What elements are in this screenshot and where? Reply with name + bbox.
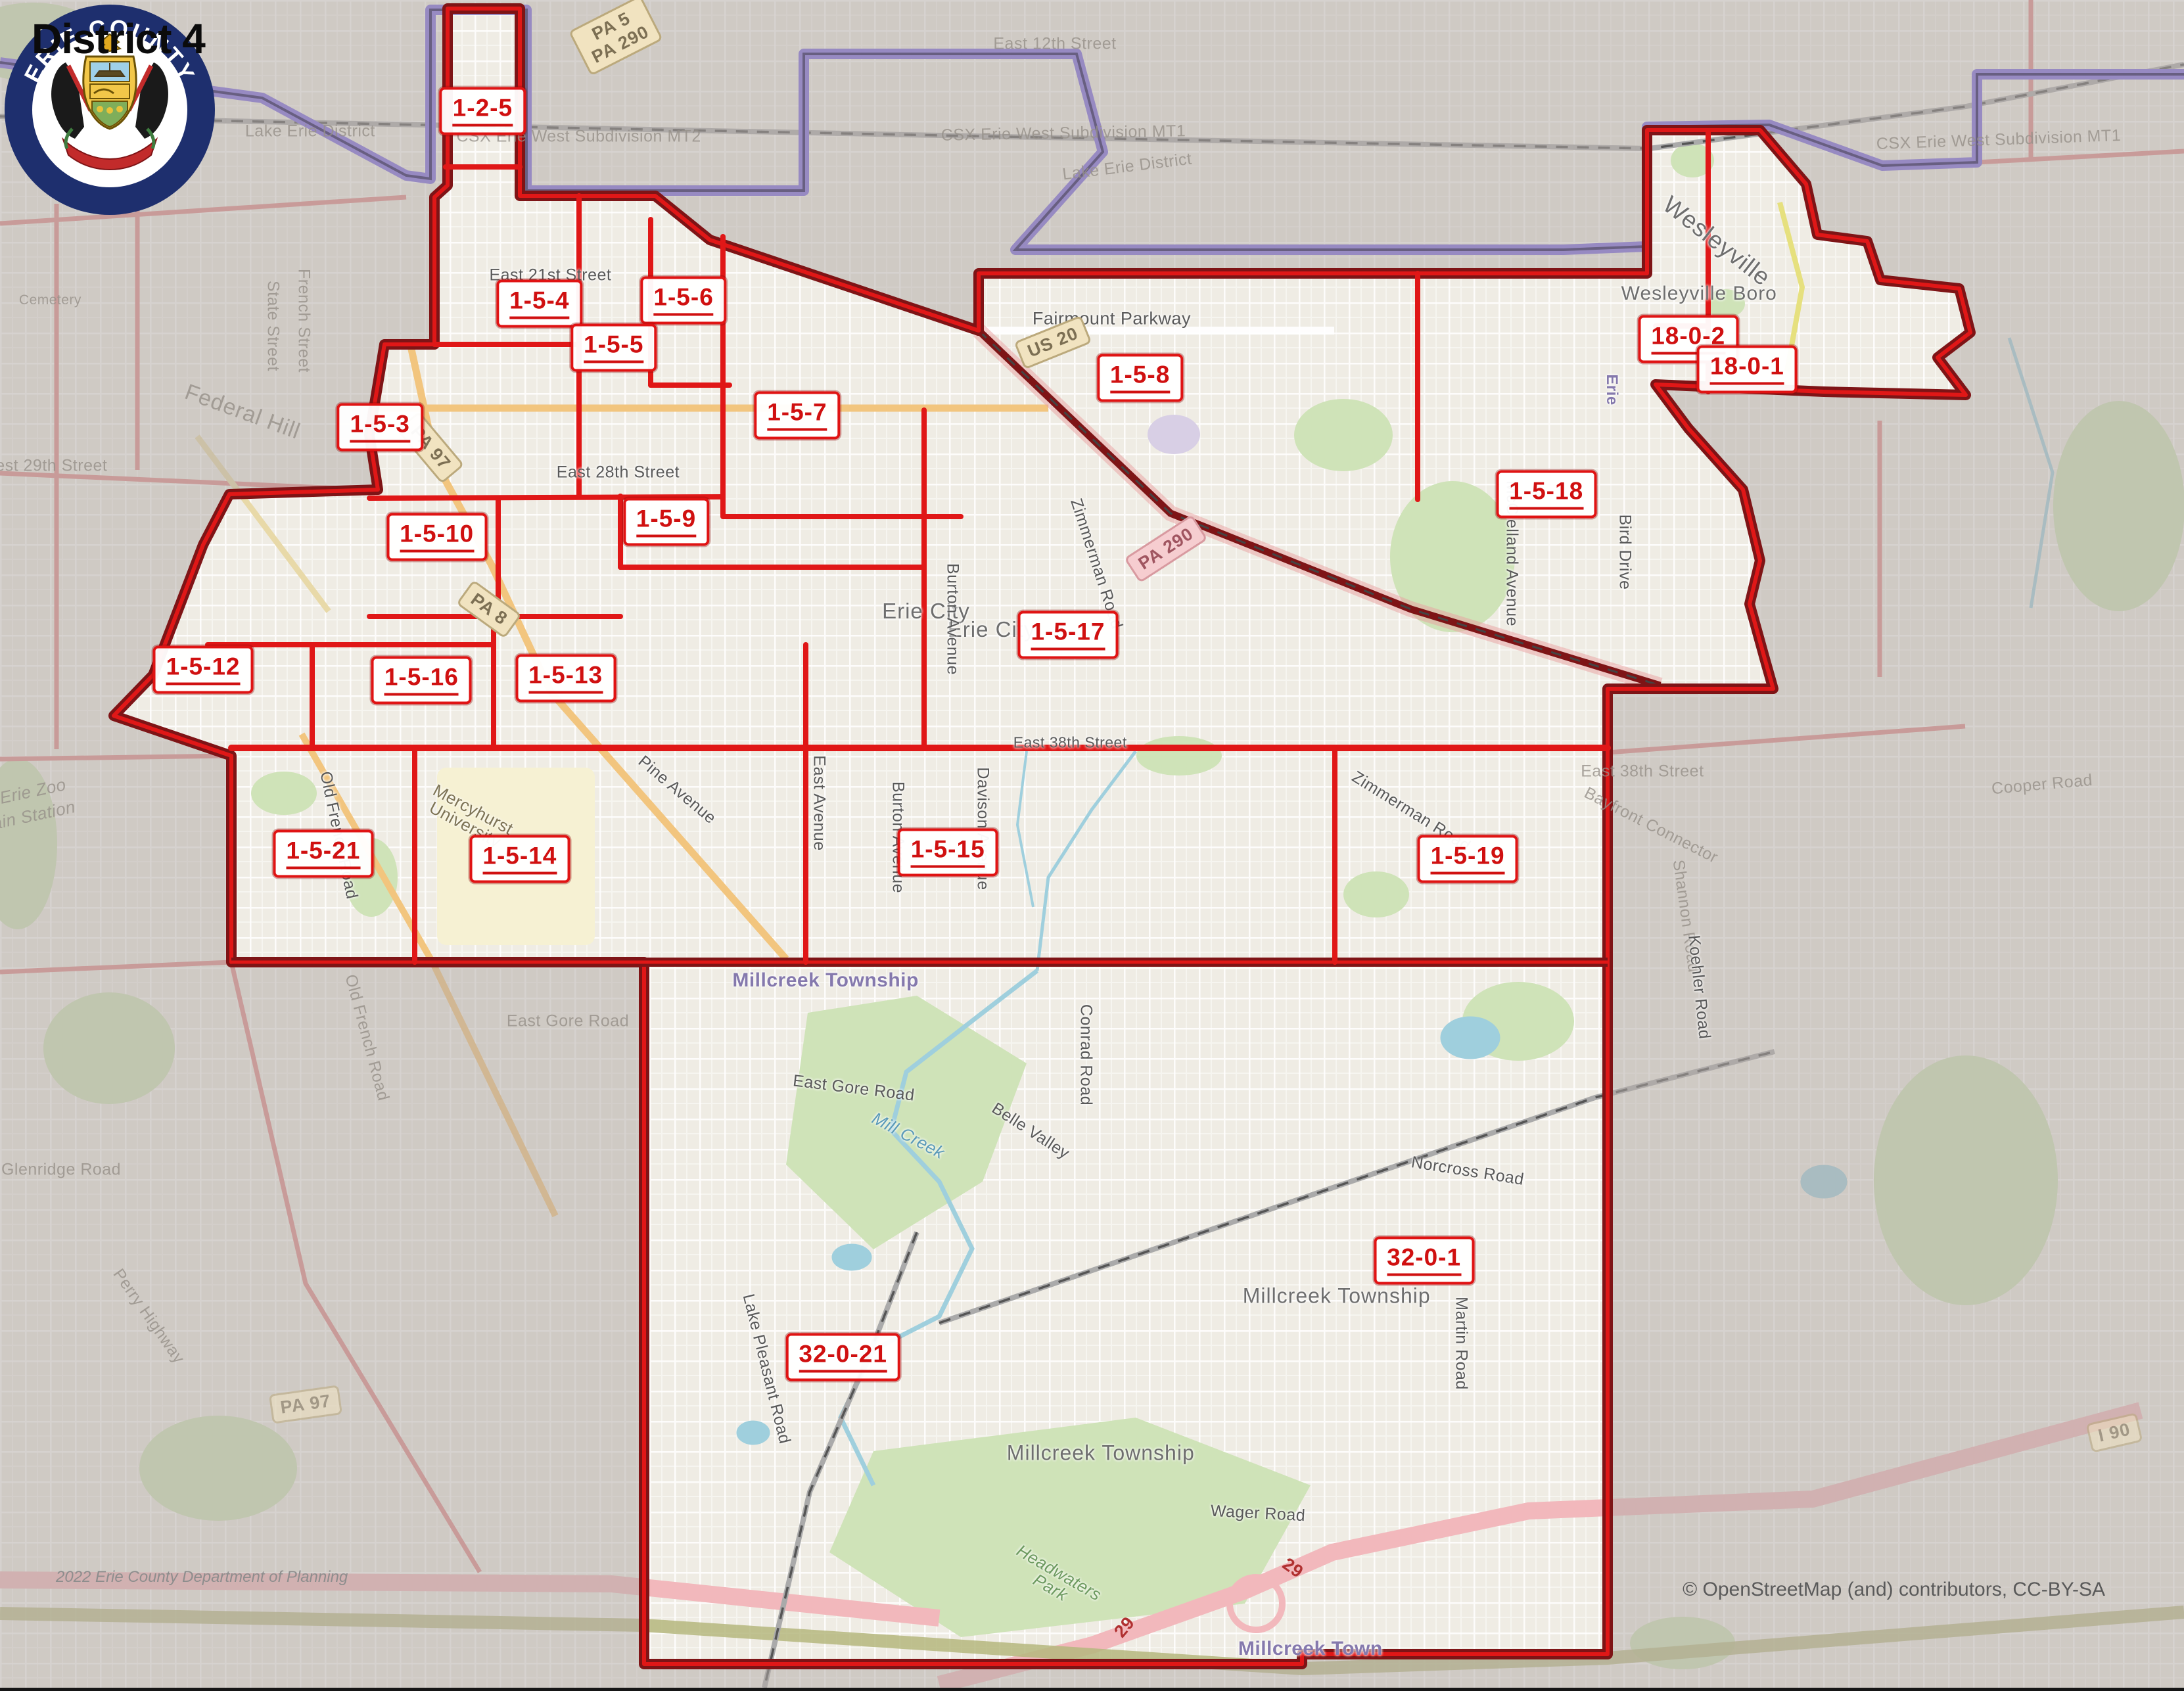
page-title: District 4 <box>32 14 205 63</box>
precinct-id: 1-5-16 <box>384 663 459 695</box>
precinct-label: 1-5-21 <box>273 830 373 878</box>
precinct-label: 1-5-3 <box>337 403 423 451</box>
precinct-id: 1-5-3 <box>350 410 409 442</box>
precinct-id: 1-5-8 <box>1110 361 1170 394</box>
precinct-id: 1-5-7 <box>767 398 827 430</box>
osm-attribution: © OpenStreetMap (and) contributors, CC-B… <box>1683 1579 2105 1601</box>
precinct-id: 1-5-9 <box>636 505 696 537</box>
route-shield-text: I 90 <box>2096 1420 2132 1447</box>
precinct-label: 1-5-7 <box>754 391 840 439</box>
map-label: Bird Drive <box>1615 514 1635 590</box>
precinct-id: 1-5-19 <box>1431 843 1505 875</box>
precinct-label: 1-5-16 <box>371 656 472 704</box>
precinct-label: 1-5-6 <box>640 277 726 325</box>
precinct-label: 1-5-4 <box>496 280 582 328</box>
district-map: District 4 East 12th StreetCSX Erie West… <box>0 0 2184 1691</box>
precinct-id: 32-0-1 <box>1387 1244 1461 1276</box>
precinct-label: 18-0-1 <box>1697 346 1798 394</box>
map-label: East 12th Street <box>993 34 1116 53</box>
precinct-label: 1-5-5 <box>570 324 657 372</box>
precinct-id: 1-5-15 <box>911 835 985 868</box>
precinct-id: 1-5-21 <box>286 837 360 869</box>
precinct-id: 1-5-5 <box>584 331 643 363</box>
map-label: East 38th Street <box>1013 733 1127 751</box>
precinct-id: 1-5-18 <box>1509 478 1583 510</box>
precinct-label: 1-2-5 <box>440 87 526 135</box>
map-label: West 29th Street <box>0 456 107 475</box>
credit-text: 2022 Erie County Department of Planning <box>56 1568 348 1587</box>
precinct-label: 1-5-10 <box>386 513 487 561</box>
precinct-id: 1-5-13 <box>528 662 603 694</box>
map-label: Burton Avenue <box>942 563 962 675</box>
precinct-label: 32-0-21 <box>785 1333 900 1381</box>
precinct-id: 1-2-5 <box>453 95 513 127</box>
precinct-id: 18-0-1 <box>1710 353 1784 385</box>
precinct-id: 1-5-17 <box>1031 618 1105 650</box>
precinct-id: 32-0-21 <box>799 1340 887 1372</box>
precinct-id: 1-5-10 <box>400 520 474 552</box>
precinct-label: 1-5-17 <box>1017 611 1118 659</box>
precinct-label: 32-0-1 <box>1374 1237 1474 1285</box>
precinct-label: 1-5-9 <box>623 498 709 545</box>
map-label: Millcreek Township <box>1007 1441 1195 1466</box>
map-label: Wesleyville Boro <box>1621 283 1777 305</box>
precinct-id: 1-5-14 <box>482 843 557 875</box>
precinct-label: 1-5-13 <box>515 655 616 703</box>
map-label: Millcreek Township <box>1243 1284 1431 1309</box>
map-label: Millcreek Town <box>1238 1638 1383 1660</box>
precinct-label: 1-5-12 <box>153 646 254 694</box>
precinct-label: 1-5-18 <box>1496 471 1596 519</box>
route-shield-text: PA 97 <box>279 1391 333 1418</box>
map-label: East 38th Street <box>1581 762 1704 781</box>
precinct-id: 1-5-4 <box>509 287 569 319</box>
map-label: Conrad Road <box>1076 1004 1095 1105</box>
map-label: Cemetery <box>19 292 81 308</box>
map-label: Erie <box>1602 375 1621 405</box>
lavender-area <box>1148 415 1200 454</box>
precinct-label: 1-5-19 <box>1418 835 1518 883</box>
map-label: State Street <box>264 281 283 371</box>
precinct-label: 1-5-8 <box>1097 354 1183 402</box>
map-label: French Street <box>294 269 313 373</box>
map-label: Glenridge Road <box>1 1160 121 1179</box>
map-label: Millcreek Township <box>732 969 919 992</box>
map-label: East Avenue <box>810 756 829 851</box>
precinct-label: 1-5-15 <box>898 828 998 876</box>
precinct-id: 1-5-6 <box>653 284 713 316</box>
map-label: East 28th Street <box>557 463 680 482</box>
map-label: Lake Erie District <box>245 122 375 141</box>
precinct-label: 1-5-14 <box>469 835 570 883</box>
precinct-id: 1-5-12 <box>166 653 241 685</box>
map-label: East Gore Road <box>507 1011 629 1031</box>
map-label: Martin Road <box>1452 1297 1471 1390</box>
